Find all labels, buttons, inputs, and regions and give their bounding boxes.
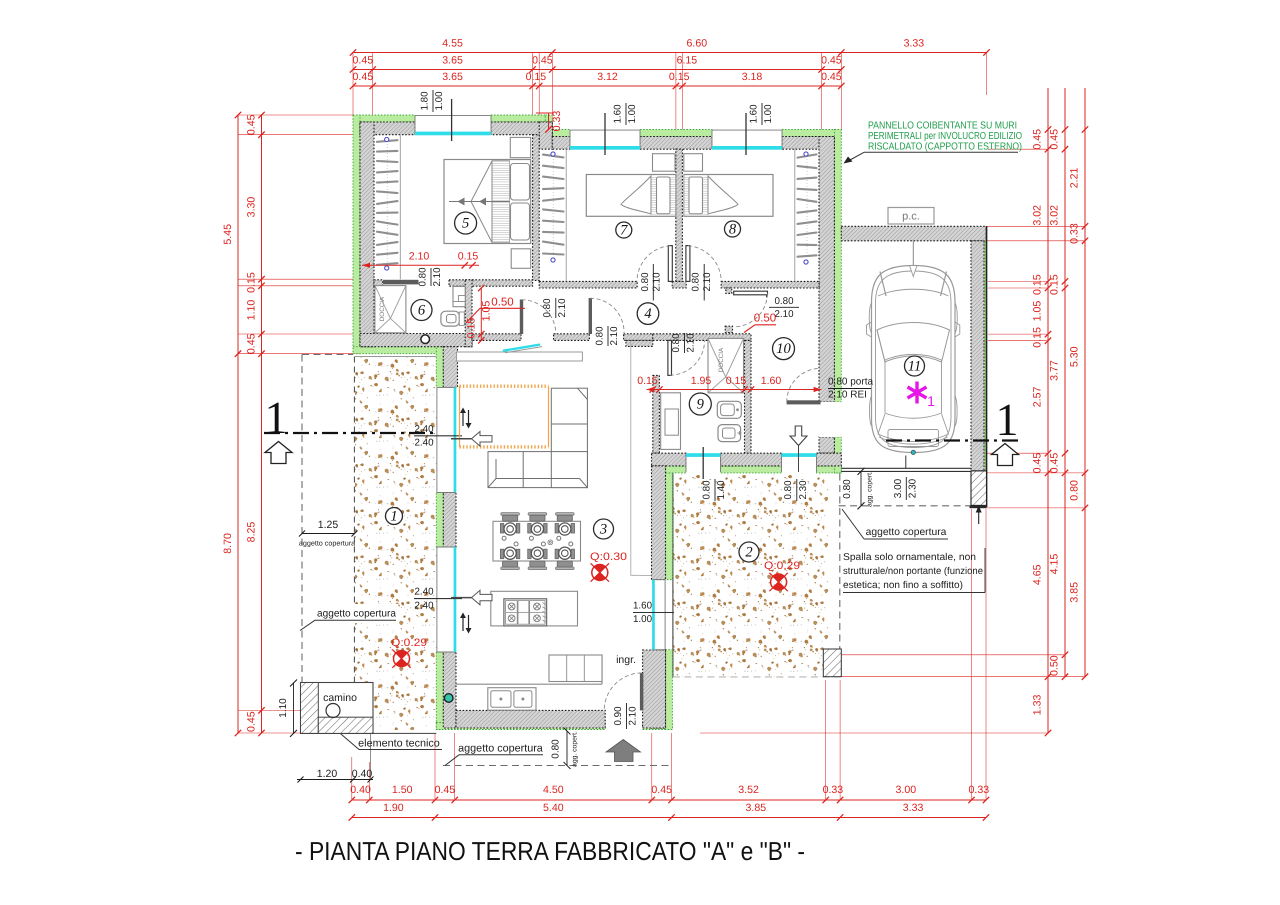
svg-text:0.45: 0.45 [246, 114, 258, 135]
svg-text:aggetto copertura: aggetto copertura [299, 539, 355, 548]
svg-text:10: 10 [776, 341, 791, 357]
svg-text:2.10: 2.10 [409, 251, 430, 263]
svg-text:2.10: 2.10 [557, 298, 568, 318]
svg-text:3.12: 3.12 [597, 71, 618, 83]
svg-text:0.15: 0.15 [1032, 274, 1044, 295]
svg-text:0.15: 0.15 [669, 71, 690, 83]
svg-text:3.85: 3.85 [745, 802, 766, 814]
svg-text:6.60: 6.60 [686, 38, 707, 50]
svg-text:3.18: 3.18 [742, 71, 763, 83]
svg-text:3.52: 3.52 [738, 784, 759, 796]
svg-text:4.65: 4.65 [1032, 564, 1044, 585]
svg-text:2.10 REI: 2.10 REI [828, 390, 867, 401]
svg-text:2.40: 2.40 [414, 600, 434, 611]
svg-text:1.60: 1.60 [761, 375, 782, 387]
svg-text:0.15: 0.15 [1049, 274, 1061, 295]
svg-text:0.45: 0.45 [1032, 453, 1044, 474]
svg-text:1.60: 1.60 [633, 601, 653, 612]
svg-text:camino: camino [323, 692, 357, 704]
svg-text:ingr.: ingr. [616, 654, 636, 666]
svg-text:2.10: 2.10 [432, 267, 443, 287]
svg-text:0.45: 0.45 [352, 71, 373, 83]
svg-text:0.15: 0.15 [466, 318, 478, 339]
svg-text:6.15: 6.15 [677, 55, 698, 67]
svg-text:1: 1 [927, 393, 935, 409]
svg-text:aggetto copertura: aggetto copertura [317, 609, 396, 620]
svg-text:3.85: 3.85 [1069, 582, 1081, 603]
svg-text:1: 1 [390, 509, 397, 525]
svg-text:0.45: 0.45 [1049, 129, 1061, 150]
svg-text:2.10: 2.10 [702, 272, 713, 292]
svg-text:11: 11 [908, 359, 921, 375]
svg-text:Spalla solo ornamentale, non: Spalla solo ornamentale, non [843, 552, 976, 563]
svg-text:1.00: 1.00 [627, 104, 638, 124]
svg-text:3.33: 3.33 [904, 38, 925, 50]
svg-text:1: 1 [265, 392, 288, 443]
svg-text:2.10: 2.10 [774, 309, 794, 320]
svg-text:4.50: 4.50 [543, 784, 564, 796]
svg-text:0.45: 0.45 [435, 784, 456, 796]
svg-text:3.30: 3.30 [246, 197, 258, 218]
svg-text:1.25: 1.25 [318, 519, 339, 531]
svg-text:5.40: 5.40 [543, 802, 564, 814]
svg-text:1.00: 1.00 [434, 91, 445, 111]
svg-text:0.15: 0.15 [726, 375, 747, 387]
svg-text:8: 8 [729, 222, 737, 238]
svg-text:0.80: 0.80 [1069, 480, 1081, 501]
svg-text:0.80 porta: 0.80 porta [828, 377, 873, 388]
svg-text:0.80: 0.80 [842, 479, 853, 499]
svg-text:3: 3 [599, 522, 607, 538]
svg-text:1.33: 1.33 [1032, 694, 1044, 715]
svg-text:2.30: 2.30 [908, 478, 919, 498]
svg-text:estetica; non fino a soffitto): estetica; non fino a soffitto) [843, 580, 963, 591]
svg-text:0.90: 0.90 [613, 706, 624, 726]
svg-text:0.50: 0.50 [754, 313, 776, 325]
svg-text:1.40: 1.40 [716, 480, 727, 500]
svg-text:0.40: 0.40 [352, 768, 373, 780]
svg-text:0.15: 0.15 [526, 71, 547, 83]
svg-text:0.80: 0.80 [542, 298, 553, 318]
svg-text:0.40: 0.40 [350, 784, 371, 796]
svg-text:1.05: 1.05 [481, 301, 493, 322]
svg-text:strutturale/non portante (funz: strutturale/non portante (funzione [843, 566, 983, 577]
svg-text:1.95: 1.95 [691, 375, 712, 387]
svg-text:0.15: 0.15 [637, 375, 658, 387]
svg-text:4.55: 4.55 [442, 38, 463, 50]
svg-text:Q:0.29: Q:0.29 [391, 637, 427, 649]
svg-text:1.80: 1.80 [419, 91, 430, 111]
svg-text:0.45: 0.45 [246, 711, 258, 732]
svg-text:0.45: 0.45 [821, 71, 842, 83]
svg-text:1.60: 1.60 [612, 104, 623, 124]
svg-text:0.80: 0.80 [417, 267, 428, 287]
svg-text:1.50: 1.50 [392, 784, 413, 796]
svg-text:3.00: 3.00 [895, 784, 916, 796]
svg-text:3.77: 3.77 [1049, 360, 1061, 381]
svg-text:1.90: 1.90 [383, 802, 404, 814]
svg-text:aggetto copertura: aggetto copertura [866, 527, 947, 538]
svg-text:1.00: 1.00 [763, 104, 774, 124]
svg-text:9: 9 [697, 397, 705, 413]
svg-text:0.80: 0.80 [640, 272, 651, 292]
svg-text:2.10: 2.10 [609, 326, 620, 346]
svg-text:2.10: 2.10 [628, 706, 639, 726]
svg-text:0.50: 0.50 [1049, 655, 1061, 676]
svg-text:2.40: 2.40 [414, 438, 434, 449]
svg-text:3.00: 3.00 [893, 478, 904, 498]
svg-text:DOCCIA: DOCCIA [718, 347, 725, 372]
svg-text:2.10: 2.10 [686, 333, 697, 353]
svg-text:2.30: 2.30 [798, 480, 809, 500]
svg-text:PANNELLO COIBENTANTE SU MURI: PANNELLO COIBENTANTE SU MURI [868, 120, 1017, 131]
svg-text:2.21: 2.21 [1069, 167, 1081, 188]
svg-text:agg. copert.: agg. copert. [867, 471, 874, 507]
svg-text:0.45: 0.45 [1032, 129, 1044, 150]
svg-text:2.57: 2.57 [1032, 386, 1044, 407]
svg-text:2.10: 2.10 [651, 272, 662, 292]
svg-text:0.80: 0.80 [774, 296, 794, 307]
svg-text:0.45: 0.45 [532, 55, 553, 67]
svg-text:0.15: 0.15 [1032, 327, 1044, 348]
svg-text:8.70: 8.70 [222, 533, 234, 554]
svg-text:3.02: 3.02 [1049, 205, 1061, 226]
svg-text:1.10: 1.10 [278, 698, 289, 718]
svg-text:p.c.: p.c. [902, 211, 920, 223]
svg-text:0.50: 0.50 [491, 297, 513, 309]
svg-text:6: 6 [418, 303, 426, 319]
svg-text:4.15: 4.15 [1049, 554, 1061, 575]
svg-text:0.80: 0.80 [671, 333, 682, 353]
svg-text:5.30: 5.30 [1069, 346, 1081, 367]
svg-text:7: 7 [620, 223, 628, 239]
svg-text:0.33: 0.33 [551, 111, 563, 132]
svg-text:0.45: 0.45 [1049, 453, 1061, 474]
svg-text:8.25: 8.25 [246, 522, 258, 543]
svg-text:1.60: 1.60 [748, 104, 759, 124]
svg-text:0.45: 0.45 [352, 55, 373, 67]
svg-text:1.20: 1.20 [317, 768, 338, 780]
svg-text:Q:0.29: Q:0.29 [764, 560, 800, 572]
svg-text:1.10: 1.10 [246, 300, 258, 321]
svg-text:0.80: 0.80 [594, 326, 605, 346]
svg-text:1: 1 [996, 394, 1019, 445]
svg-text:RISCALDATO (CAPPOTTO ESTERNO): RISCALDATO (CAPPOTTO ESTERNO) [868, 142, 1022, 153]
svg-text:- PIANTA PIANO TERRA FABBRICAT: - PIANTA PIANO TERRA FABBRICATO "A" e "B… [295, 836, 805, 866]
svg-text:0.80: 0.80 [783, 480, 794, 500]
svg-text:5: 5 [462, 216, 469, 232]
svg-text:0.80: 0.80 [691, 272, 702, 292]
svg-text:3.65: 3.65 [442, 71, 463, 83]
svg-text:2.40: 2.40 [414, 587, 434, 598]
svg-text:0.45: 0.45 [821, 55, 842, 67]
svg-text:aggetto copertura: aggetto copertura [458, 743, 543, 755]
svg-text:0.15: 0.15 [458, 251, 479, 263]
svg-text:0.45: 0.45 [246, 333, 258, 354]
svg-text:3.65: 3.65 [442, 55, 463, 67]
svg-text:5.45: 5.45 [222, 224, 234, 245]
svg-text:3.02: 3.02 [1032, 205, 1044, 226]
svg-text:3.33: 3.33 [903, 802, 924, 814]
svg-text:0.15: 0.15 [246, 272, 258, 293]
svg-text:0.45: 0.45 [651, 784, 672, 796]
svg-text:1.05: 1.05 [1032, 301, 1044, 322]
svg-text:agg. copert.: agg. copert. [572, 731, 579, 767]
svg-text:1.00: 1.00 [633, 614, 653, 625]
svg-text:2: 2 [745, 545, 752, 561]
svg-text:PERIMETRALI per INVOLUCRO EDIL: PERIMETRALI per INVOLUCRO EDILIZIO [868, 131, 1022, 142]
svg-text:Q:0.30: Q:0.30 [590, 551, 627, 563]
svg-text:DOCCIA: DOCCIA [379, 296, 386, 321]
svg-text:0.80: 0.80 [701, 480, 712, 500]
svg-text:0.80: 0.80 [551, 739, 562, 759]
svg-text:4: 4 [644, 306, 651, 322]
